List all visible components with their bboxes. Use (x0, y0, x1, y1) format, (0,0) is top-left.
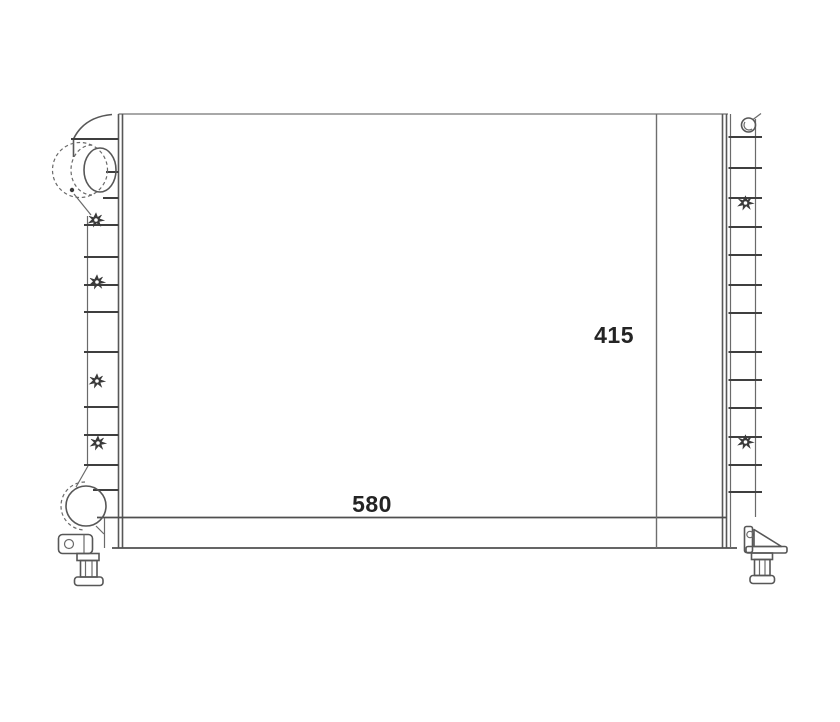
spring-clip-icon (91, 436, 106, 450)
right-foot-collar (752, 553, 773, 560)
left-bracket-body (59, 535, 93, 554)
left-foot-pin (81, 561, 98, 578)
left-mounting-foot (75, 554, 104, 586)
filler-neck-tab (753, 114, 761, 120)
filler-neck-inner-arc (744, 122, 752, 130)
left-bracket-hole (65, 540, 74, 549)
outlet-pipe-bore (66, 486, 106, 526)
radiator-diagram-canvas: 415 580 (0, 0, 840, 722)
outlet-strut (76, 466, 88, 487)
left-foot-collar (77, 554, 99, 561)
outlet-flange-arc (61, 482, 85, 530)
right-foot-base (750, 576, 775, 584)
inlet-rivet-dot (70, 188, 74, 192)
height-dimension: 415 (594, 114, 656, 548)
radiator-core-outline (97, 114, 737, 548)
inlet-flange-circle (53, 143, 108, 198)
filler-neck (742, 114, 762, 133)
inlet-pipe (53, 143, 117, 216)
width-dimension-label: 580 (352, 491, 392, 517)
radiator-drawing-svg: 415 580 (0, 0, 840, 722)
right-mounting-foot (750, 553, 775, 584)
left-tank (53, 115, 119, 586)
inlet-pipe-bore (84, 148, 116, 192)
right-foot-pin (755, 560, 771, 576)
spring-clip-icon (90, 374, 105, 388)
left-bracket (59, 535, 93, 554)
spring-clip-icon (90, 275, 105, 289)
right-bracket (745, 527, 788, 554)
right-bracket-gusset (754, 530, 782, 547)
height-dimension-label: 415 (594, 322, 634, 348)
left-foot-base (75, 577, 104, 586)
right-tank (729, 114, 788, 584)
outlet-corner-link (96, 526, 104, 534)
